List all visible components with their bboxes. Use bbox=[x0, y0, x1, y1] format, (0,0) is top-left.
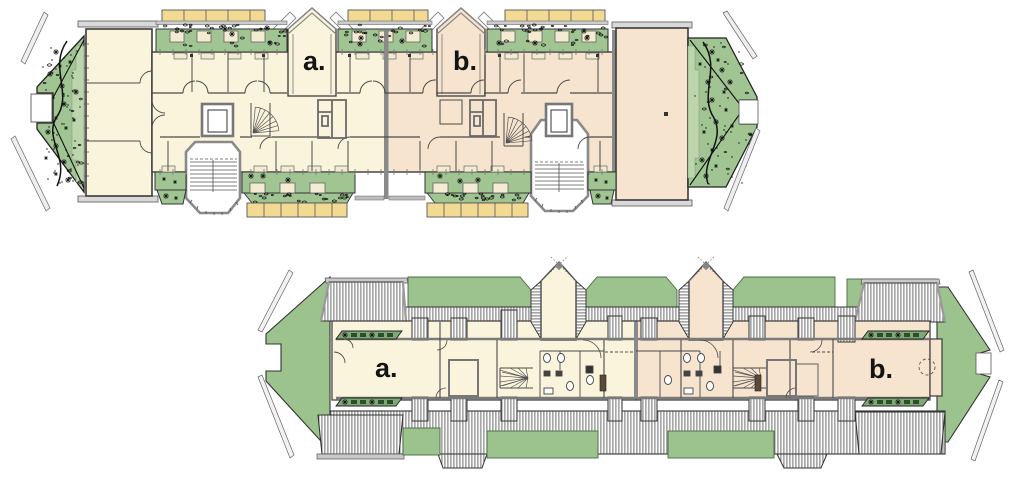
svg-text:a.: a. bbox=[303, 46, 326, 76]
svg-text:b.: b. bbox=[453, 46, 477, 76]
svg-text:a.: a. bbox=[375, 353, 398, 383]
svg-text:b.: b. bbox=[869, 354, 893, 384]
